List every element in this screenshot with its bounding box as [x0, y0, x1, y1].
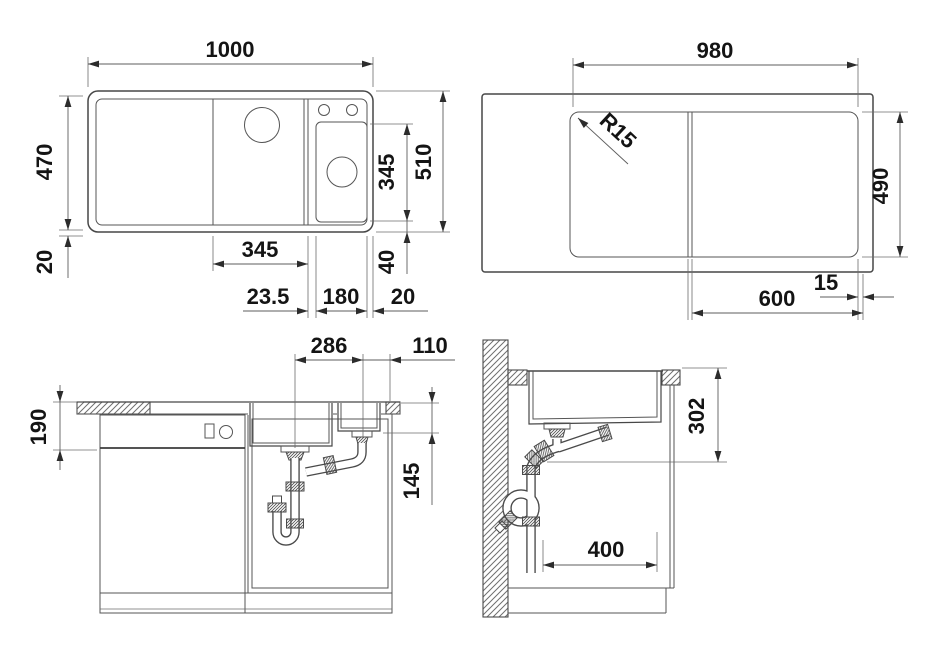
dim-total-height: 510	[411, 144, 436, 181]
dim-wall-clearance: 400	[588, 537, 625, 562]
drawing-canvas: 1000 470 20 345 23.5 180 20 345 40 510	[0, 0, 942, 664]
counter-cut-back	[508, 370, 527, 385]
dim-outlet-height: 302	[684, 398, 709, 435]
dim-right-edge: 20	[391, 284, 415, 309]
dim-accessory-width: 180	[323, 284, 360, 309]
sheet-background	[0, 0, 942, 664]
dim-bowl-width: 345	[242, 237, 279, 262]
dim-total-width: 1000	[206, 37, 255, 62]
dim-drain-to-edge: 110	[412, 333, 448, 358]
dim-bowl-depth: 190	[26, 409, 51, 446]
dim-accessory-bowl-depth: 145	[399, 463, 424, 500]
dim-accessory-height: 345	[374, 154, 399, 191]
dim-bowl-span: 600	[759, 286, 796, 311]
dim-basin-height: 470	[32, 144, 57, 181]
dim-drain-spacing: 286	[311, 333, 348, 358]
dim-bowl-gap: 23.5	[247, 284, 290, 309]
technical-drawing-sheet: 1000 470 20 345 23.5 180 20 345 40 510	[0, 0, 942, 664]
wall-section	[483, 340, 508, 617]
dim-edge-gap: 15	[814, 270, 838, 295]
dim-accessory-bottom-gap: 40	[374, 250, 399, 274]
counter-cut-left	[77, 402, 150, 414]
dim-cutout-width: 980	[697, 38, 734, 63]
dim-bottom-edge: 20	[32, 250, 57, 274]
dim-cutout-height: 490	[868, 168, 893, 205]
counter-cut-front	[662, 370, 680, 385]
counter-cut-right	[386, 402, 400, 414]
